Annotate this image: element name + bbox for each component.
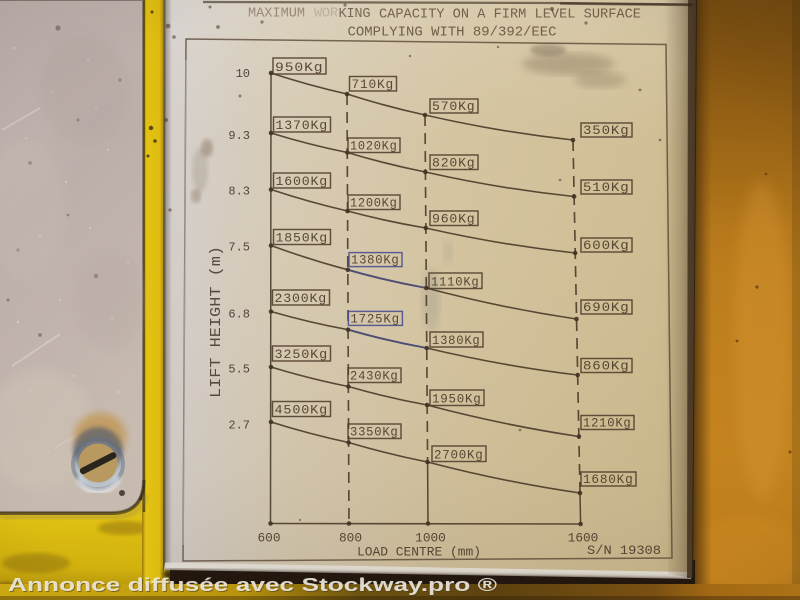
svg-text:Annonce diffusée avec Stockway: Annonce diffusée avec Stockway.pro ® [8,574,498,595]
